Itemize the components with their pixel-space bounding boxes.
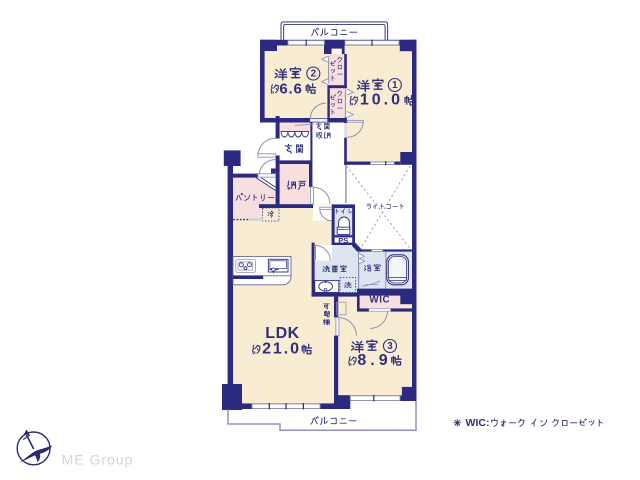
svg-text:PS: PS xyxy=(338,236,348,245)
svg-text:2: 2 xyxy=(311,68,317,79)
svg-text:LDK: LDK xyxy=(265,325,299,342)
svg-text:WIC:: WIC: xyxy=(466,417,490,429)
svg-text:10.0: 10.0 xyxy=(360,92,403,109)
svg-text:3: 3 xyxy=(387,341,393,352)
svg-text:6.6: 6.6 xyxy=(279,80,302,97)
svg-text:ME Group: ME Group xyxy=(62,451,134,467)
svg-text:1: 1 xyxy=(392,80,398,91)
svg-text:21.0: 21.0 xyxy=(262,341,301,358)
svg-text:WIC: WIC xyxy=(369,295,390,306)
svg-text:8.9: 8.9 xyxy=(357,352,391,369)
